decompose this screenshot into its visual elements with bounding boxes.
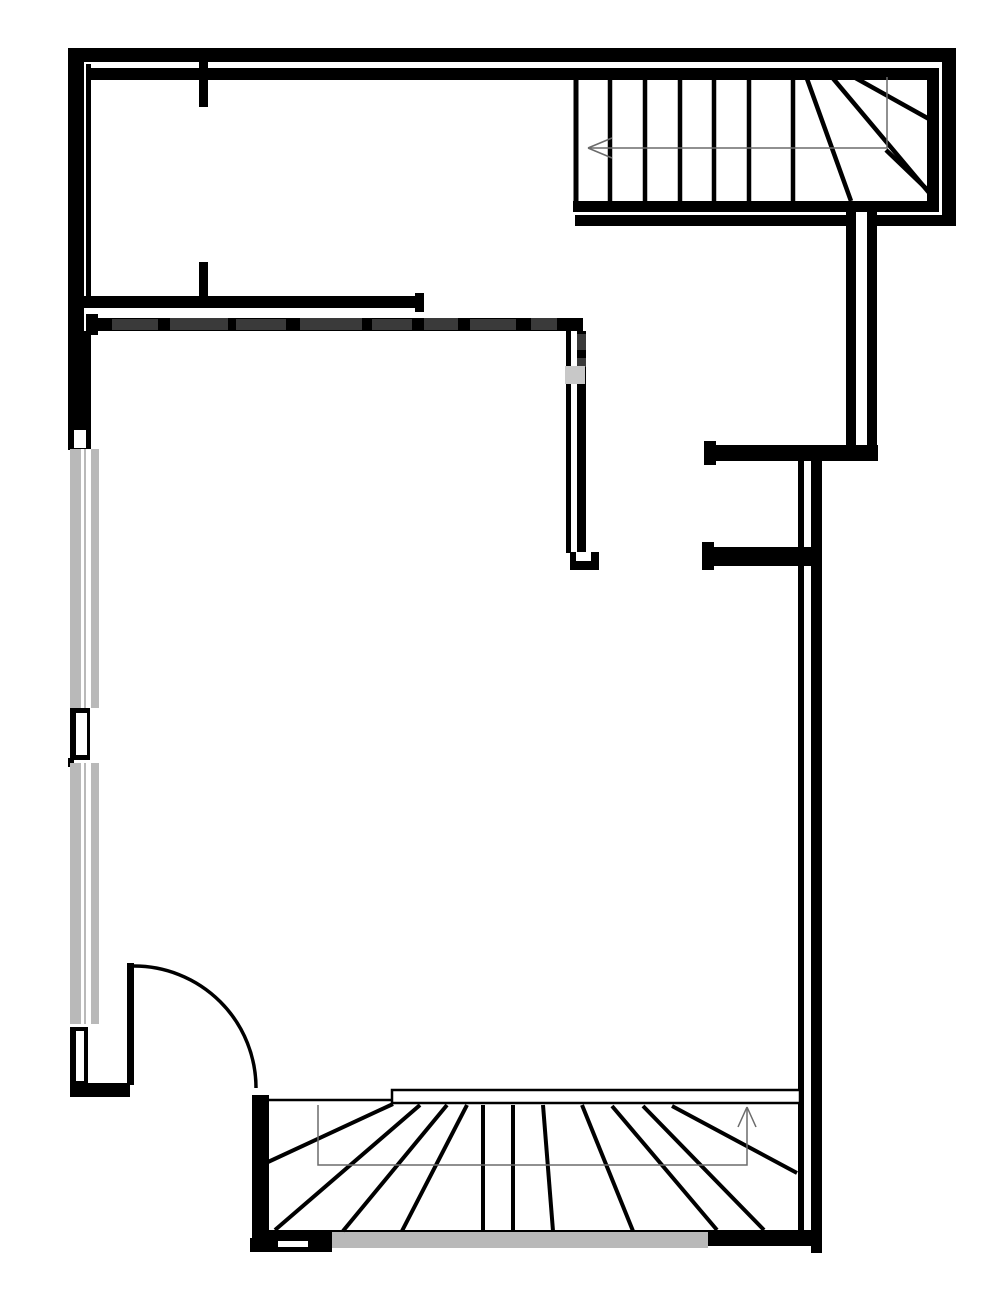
right-mid-horizontal-cap <box>704 441 716 465</box>
window-pier-glass <box>76 713 87 755</box>
window-left-2-mullion <box>84 763 86 1024</box>
watermark-light-glyph <box>565 366 585 384</box>
outer-right-wall <box>942 48 956 226</box>
stair-landing-bar <box>392 1090 800 1103</box>
floor-plan-canvas <box>0 0 1000 1292</box>
door-jamb-stub-mid <box>199 262 208 298</box>
watermark-4 <box>300 318 362 330</box>
left-wall-notch <box>74 430 86 448</box>
door-stub-wall <box>704 547 812 566</box>
bstair-arrow-arm-1 <box>738 1107 747 1127</box>
inner-top-wall <box>88 68 939 80</box>
right-mid-horizontal-wall <box>706 445 878 461</box>
outer-top-wall <box>68 48 956 62</box>
door-jamb-stub-top <box>199 62 208 107</box>
bstair-arrow-arm-2 <box>747 1107 756 1127</box>
window-bottom <box>332 1232 708 1248</box>
lower-vert-wall-thick <box>811 461 822 1253</box>
bstair-fan-7 <box>543 1105 553 1231</box>
interior-wall-a <box>82 296 424 308</box>
watermark-6 <box>424 318 458 330</box>
door-swing-arc <box>134 966 256 1088</box>
door-stub-cap <box>702 542 714 570</box>
mid-wall-foot-notch <box>576 552 591 561</box>
stair-inner-bottom-wall <box>573 201 939 212</box>
stair-outer-bottom-wall-left <box>575 215 848 226</box>
left-corner-slit <box>76 1031 84 1081</box>
bstair-fan-11 <box>672 1106 797 1173</box>
left-inner-wall-line <box>86 64 91 296</box>
bstair-fan-3 <box>343 1105 447 1231</box>
bottom-left-notch <box>278 1241 308 1247</box>
left-corner-wall-horizontal <box>70 1083 130 1097</box>
watermark-3 <box>236 319 286 330</box>
watermark-1 <box>112 319 158 330</box>
watermark-9 <box>577 334 586 350</box>
door-leaf <box>127 963 134 1085</box>
floor-plan <box>0 0 1000 1292</box>
right-upper-vert-wall-2 <box>867 212 877 447</box>
bstair-fan-4 <box>402 1105 467 1231</box>
mid-wall-thin <box>566 331 571 553</box>
watermark-7 <box>470 319 516 330</box>
bstair-fan-1 <box>268 1104 393 1162</box>
watermark-5 <box>372 319 412 330</box>
interior-wall-a-cap <box>415 293 424 312</box>
right-upper-vert-wall-1 <box>846 212 856 447</box>
watermark-2 <box>170 318 228 330</box>
bstair-left-wall <box>252 1095 269 1246</box>
watermark-8 <box>531 318 557 330</box>
window-left-1-mullion <box>84 449 86 708</box>
stair-outer-bottom-wall-right <box>870 215 956 226</box>
watermark-10 <box>577 358 586 367</box>
lower-vert-wall-thin <box>798 461 804 1231</box>
